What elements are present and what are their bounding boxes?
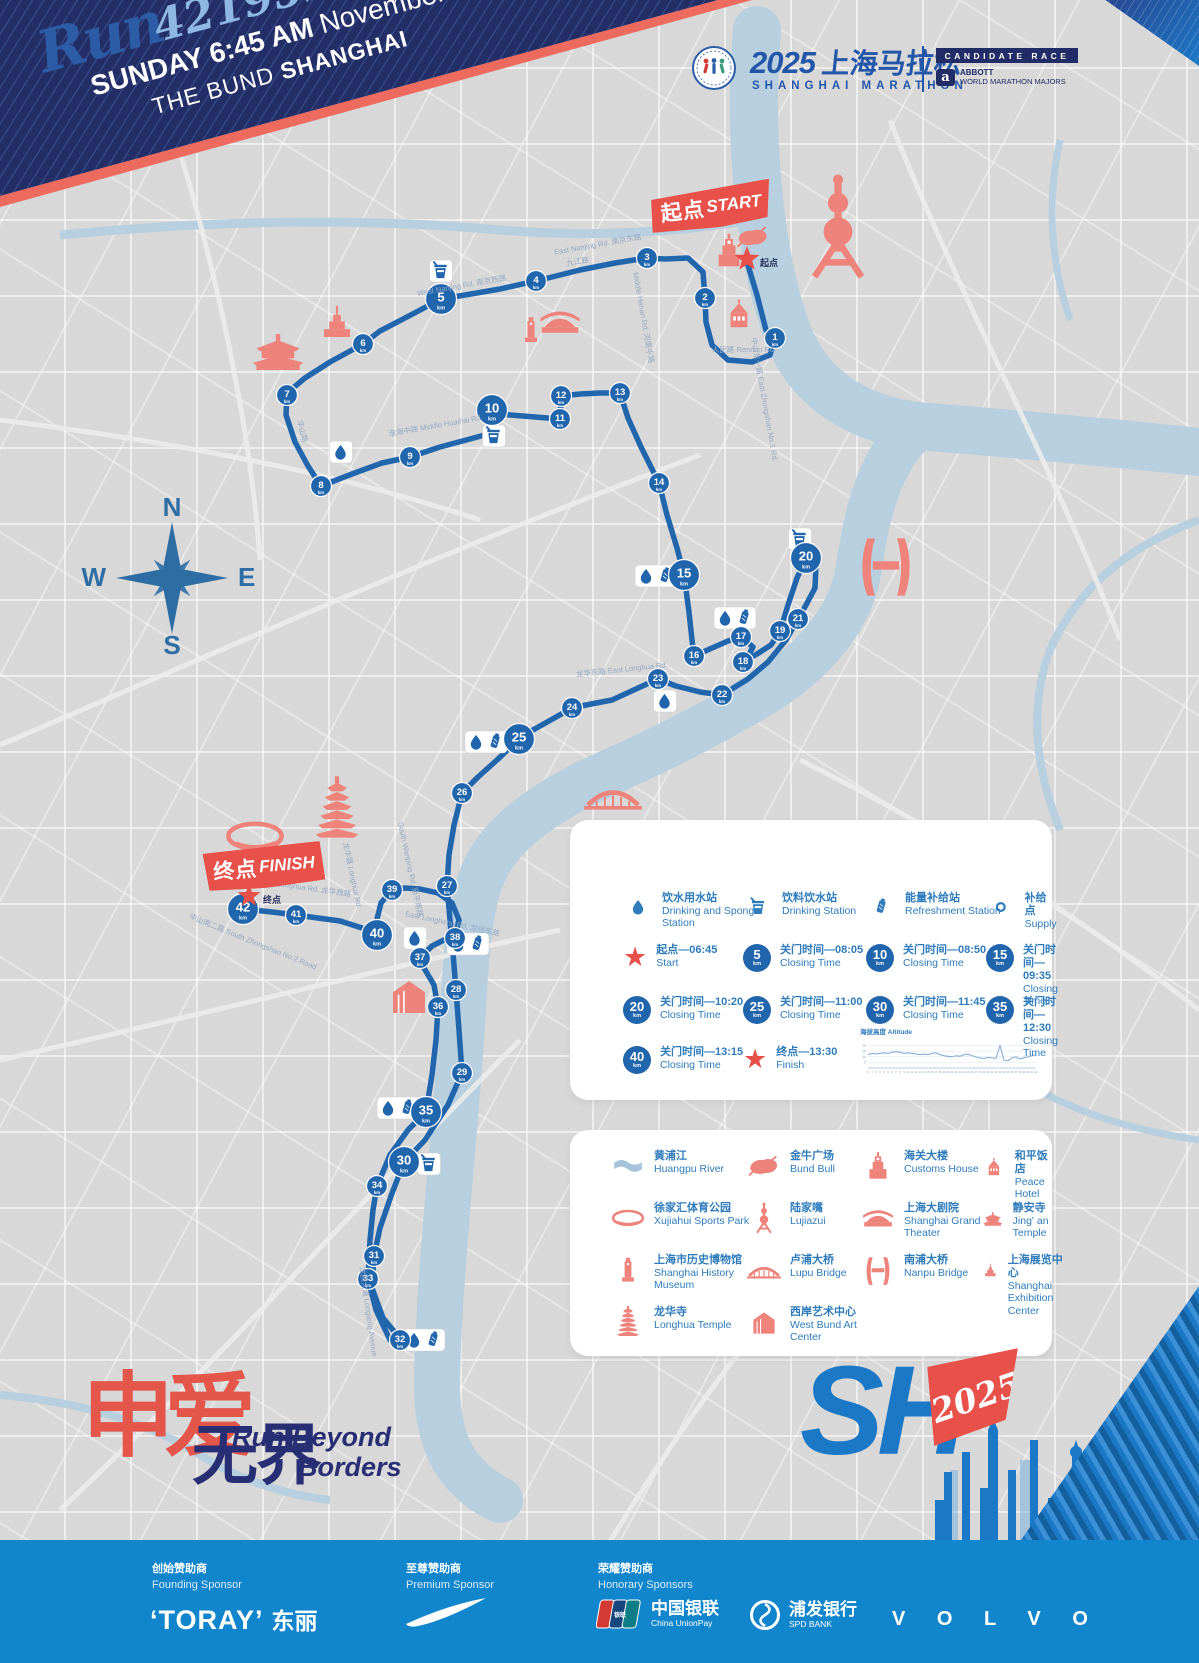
legend-station-ring: 补给点Supply [986, 892, 1057, 930]
lupu-icon [747, 1254, 781, 1288]
landmark-zh: 金牛广场 [790, 1150, 835, 1163]
landmark-zh: 徐家汇体育公园 [654, 1202, 749, 1215]
premium-en: Premium Sponsor [406, 1579, 494, 1591]
legend-closing-time-5km: 5km关门时间—08:05Closing Time [743, 944, 863, 972]
landmark-zh: 卢浦大桥 [790, 1254, 847, 1267]
landmark-en: Jing' an Temple [1013, 1215, 1049, 1239]
spd-bank-logo: 浦发银行 SPD BANK [748, 1598, 857, 1632]
legend-landmarks: 黄浦江Huangpu River金牛广场Bund Bull海关大楼Customs… [570, 1130, 1052, 1356]
time-en: Closing Time [903, 1009, 964, 1021]
station-zh: 补给点 [1025, 892, 1058, 918]
legend-landmark-museum: 上海市历史博物馆Shanghai History Museum [611, 1254, 754, 1292]
ring-icon [986, 892, 1016, 922]
unionpay-en: China UnionPay [651, 1618, 719, 1628]
station-en: Supply [1025, 918, 1057, 930]
svg-text:5: 5 [887, 1070, 889, 1074]
time-zh: 终点—13:30 [776, 1046, 837, 1059]
legend-closing-time-25km: 25km关门时间—11:00Closing Time [743, 996, 863, 1024]
km-badge-10: 10km [866, 944, 894, 972]
time-en: Closing Time [903, 957, 964, 969]
exhibition-icon [982, 1254, 999, 1288]
star-icon: ★ [623, 944, 647, 970]
legend-landmark-stadium: 徐家汇体育公园Xujiahui Sports Park [611, 1202, 749, 1236]
svg-text:3: 3 [879, 1070, 881, 1074]
legend-landmark-bull: 金牛广场Bund Bull [747, 1150, 835, 1184]
river-icon [611, 1150, 645, 1184]
legend-landmark-peace: 和平饭店Peace Hotel [982, 1150, 1055, 1201]
unionpay-card-text: 银联 [614, 1611, 626, 1619]
volvo-logo: V O L V O [892, 1608, 1101, 1631]
landmark-zh: 龙华寺 [654, 1306, 731, 1319]
legend-landmark-customs: 海关大楼Customs House [861, 1150, 979, 1184]
museum-icon [611, 1254, 645, 1288]
unionpay-logo: 银联 中国银联 China UnionPay [596, 1598, 719, 1630]
svg-text:42: 42 [1034, 1070, 1038, 1074]
legend-closing-time-20km: 20km关门时间—10:20Closing Time [623, 996, 743, 1024]
landmark-zh: 陆家嘴 [790, 1202, 826, 1215]
km-badge-40: 40km [623, 1046, 651, 1074]
founding-en: Founding Sponsor [152, 1579, 242, 1591]
theater-icon [861, 1202, 895, 1236]
legend-closing-time-35km: 35km关门时间—12:30Closing Time [986, 996, 1058, 1060]
landmark-zh: 上海展览中心 [1008, 1254, 1071, 1280]
landmark-zh: 上海市历史博物馆 [654, 1254, 754, 1267]
founding-sponsor-label: 创始赞助商 Founding Sponsor [152, 1560, 242, 1591]
legend-start-time: ★起点—06:45Start [623, 944, 717, 970]
svg-text:9: 9 [903, 1070, 905, 1074]
time-en: Closing Time [780, 1009, 841, 1021]
landmark-zh: 海关大楼 [904, 1150, 979, 1163]
svg-text:1: 1 [871, 1070, 873, 1074]
stadium-icon [611, 1202, 645, 1236]
legend-station-drop: 饮水用水站Drinking and Sponge Station [623, 892, 762, 930]
time-en: Finish [776, 1059, 804, 1071]
time-en: Start [656, 957, 678, 969]
gel-icon [866, 892, 896, 922]
cup-icon [743, 892, 773, 922]
svg-text:8: 8 [899, 1070, 901, 1074]
spd-en: SPD BANK [789, 1619, 857, 1629]
time-en: Closing Time [660, 1059, 721, 1071]
drop-icon [623, 892, 653, 922]
svg-text:4: 4 [883, 1070, 885, 1074]
svg-text:20: 20 [862, 1044, 866, 1048]
honorary-sponsor-label: 荣耀赞助商 Honorary Sponsors [598, 1560, 693, 1591]
legend-landmark-river: 黄浦江Huangpu River [611, 1150, 724, 1184]
km-badge-5: 5km [743, 944, 771, 972]
legend-landmark-pagoda: 龙华寺Longhua Temple [611, 1306, 731, 1340]
svg-text:7: 7 [895, 1070, 897, 1074]
time-en: Closing Time [1023, 1035, 1058, 1059]
landmark-en: Peace Hotel [1015, 1176, 1045, 1200]
landmark-zh: 和平饭店 [1015, 1150, 1055, 1176]
legend-closing-time-10km: 10km关门时间—08:50Closing Time [866, 944, 986, 972]
unionpay-card-icon: 银联 [596, 1598, 644, 1630]
unionpay-zh: 中国银联 [651, 1600, 719, 1619]
star-icon: ★ [743, 1046, 767, 1072]
time-en: Closing Time [780, 957, 841, 969]
landmark-en: Longhua Temple [654, 1319, 731, 1331]
time-zh: 关门时间—13:15 [660, 1046, 743, 1059]
station-zh: 饮料饮水站 [782, 892, 856, 905]
westbund-icon [747, 1306, 781, 1340]
marathon-route-poster: 1km2km3km4km5km6km7km8km9km10km11km12km1… [0, 0, 1199, 1663]
toray-zh: 东丽 [272, 1608, 318, 1634]
landmark-en: Lujiazui [790, 1215, 826, 1227]
legend-closing-time-30km: 30km关门时间—11:45Closing Time [866, 996, 986, 1024]
legend-landmark-nanpu: 南浦大桥Nanpu Bridge [861, 1254, 968, 1288]
time-en: Closing Time [660, 1009, 721, 1021]
km-badge-35: 35km [986, 996, 1014, 1024]
time-zh: 关门时间—08:50 [903, 944, 986, 957]
svg-text:15: 15 [862, 1049, 866, 1053]
legend-station-gel: 能量补给站Refreshment Station [866, 892, 1001, 922]
premium-sponsor-label: 至尊赞助商 Premium Sponsor [406, 1560, 494, 1591]
legend-closing-time-40km: 40km关门时间—13:15Closing Time [623, 1046, 743, 1074]
legend-landmark-lupu: 卢浦大桥Lupu Bridge [747, 1254, 847, 1288]
km-badge-20: 20km [623, 996, 651, 1024]
legend-stations-and-times: 海拔高度 Altitude 51015200123456789101112131… [570, 820, 1052, 1100]
svg-text:10: 10 [862, 1055, 866, 1059]
landmark-en: Shanghai Exhibition Center [1008, 1280, 1054, 1317]
honorary-zh: 荣耀赞助商 [598, 1563, 653, 1575]
legend-finish-time: ★终点—13:30Finish [743, 1046, 837, 1072]
svg-text:10: 10 [906, 1070, 910, 1074]
legend-landmark-temple: 静安寺Jing' an Temple [982, 1202, 1059, 1240]
km-badge-15: 15km [986, 944, 1014, 972]
landmark-en: Shanghai Grand Theater [904, 1215, 980, 1239]
svg-text:2: 2 [875, 1070, 877, 1074]
landmark-zh: 黄浦江 [654, 1150, 724, 1163]
landmark-en: Shanghai History Museum [654, 1267, 734, 1291]
time-zh: 起点—06:45 [656, 944, 717, 957]
station-en: Drinking Station [782, 905, 856, 917]
premium-zh: 至尊赞助商 [406, 1563, 461, 1575]
toray-wordmark: ‘TORAY’ [150, 1605, 264, 1635]
temple-icon [982, 1202, 1004, 1236]
landmark-en: West Bund Art Center [790, 1319, 857, 1343]
pagoda-icon [611, 1306, 645, 1340]
km-badge-25: 25km [743, 996, 771, 1024]
time-zh: 关门时间—09:35 [1023, 944, 1058, 983]
spd-zh: 浦发银行 [789, 1601, 857, 1620]
km-badge-30: 30km [866, 996, 894, 1024]
legend-landmark-pearl: 陆家嘴Lujiazui [747, 1202, 826, 1236]
pearl-icon [747, 1202, 781, 1236]
honorary-en: Honorary Sponsors [598, 1579, 693, 1591]
bull-icon [747, 1150, 781, 1184]
customs-icon [861, 1150, 895, 1184]
legend-station-cup: 饮料饮水站Drinking Station [743, 892, 856, 922]
landmark-en: Lupu Bridge [790, 1267, 847, 1279]
landmark-en: Bund Bull [790, 1163, 835, 1175]
time-zh: 关门时间—12:30 [1023, 996, 1058, 1035]
time-zh: 关门时间—11:00 [780, 996, 863, 1009]
legend-landmark-exhibition: 上海展览中心Shanghai Exhibition Center [982, 1254, 1071, 1317]
svg-text:6: 6 [891, 1070, 893, 1074]
sponsor-band: 创始赞助商 Founding Sponsor 至尊赞助商 Premium Spo… [0, 1540, 1199, 1663]
time-zh: 关门时间—11:45 [903, 996, 986, 1009]
svg-text:5: 5 [864, 1061, 866, 1065]
landmark-en: Customs House [904, 1163, 979, 1175]
nanpu-icon [861, 1254, 895, 1288]
svg-text:11: 11 [911, 1070, 914, 1074]
svg-text:0: 0 [867, 1070, 869, 1074]
nike-swoosh-icon [402, 1596, 502, 1634]
landmark-zh: 西岸艺术中心 [790, 1306, 890, 1319]
toray-logo: ‘TORAY’东丽 [150, 1602, 318, 1636]
time-zh: 关门时间—08:05 [780, 944, 863, 957]
landmark-en: Nanpu Bridge [904, 1267, 968, 1279]
time-zh: 关门时间—10:20 [660, 996, 743, 1009]
peace-icon [982, 1150, 1006, 1184]
spd-bank-icon [748, 1598, 782, 1632]
landmark-en: Huangpu River [654, 1163, 724, 1175]
founding-zh: 创始赞助商 [152, 1563, 207, 1575]
landmark-zh: 静安寺 [1013, 1202, 1059, 1215]
legend-landmark-westbund: 西岸艺术中心West Bund Art Center [747, 1306, 890, 1344]
landmark-en: Xujiahui Sports Park [654, 1215, 749, 1227]
landmark-zh: 南浦大桥 [904, 1254, 968, 1267]
